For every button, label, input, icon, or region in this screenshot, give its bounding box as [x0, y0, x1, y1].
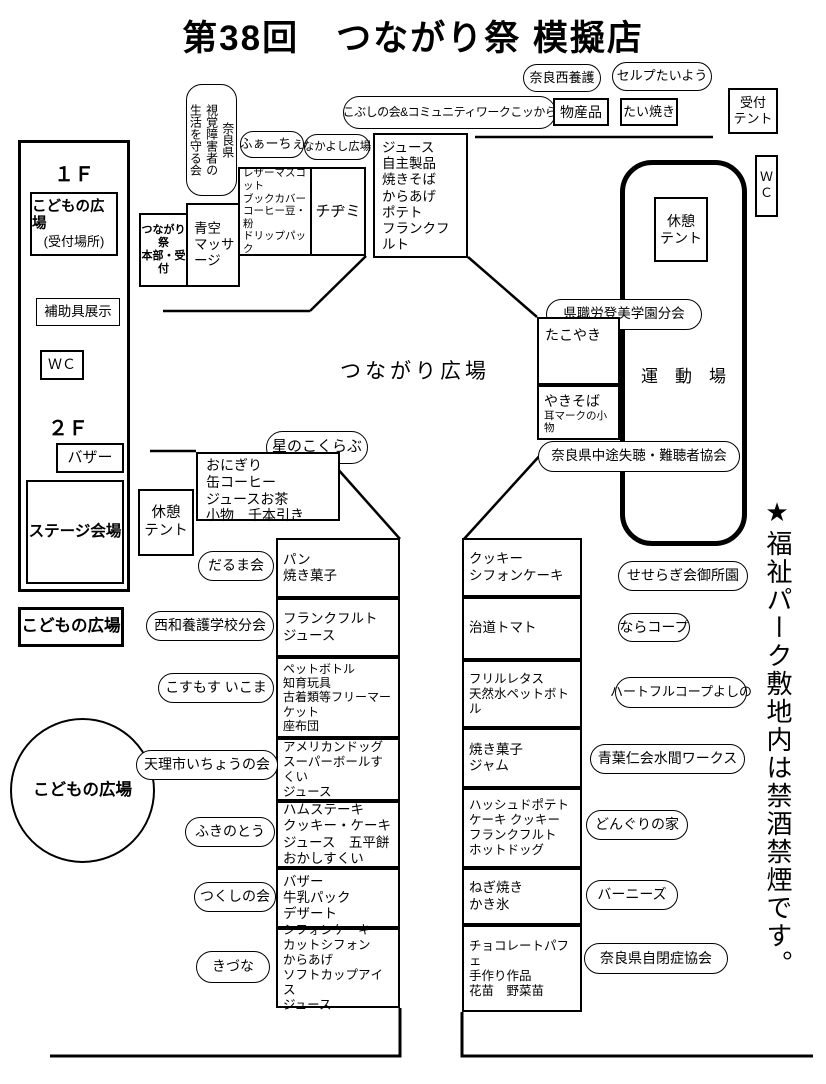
- booth-jiheisho: チョコレートパフェ 手作り作品 花苗 野菜苗: [462, 925, 582, 1012]
- booth-heartful: フリルレタス 天然水ペットボトル: [462, 660, 582, 728]
- org-tsukushi-no-kai: つくしの会: [194, 882, 276, 912]
- wc-box-right: Ｗ Ｃ: [755, 155, 778, 217]
- booth-cosmos: ペットボトル 知育玩具 古着類等フリーマーケット 座布団: [276, 657, 400, 738]
- wc-label: ＷＣ: [48, 357, 76, 374]
- bussanhin-label: 物産品: [560, 104, 602, 121]
- kids-plaza-circle: こどもの広場: [10, 718, 155, 863]
- nakayoshi-booth-box: ジュース 自主製品 焼きそば からあげ ポテト フランクフルト: [373, 133, 468, 258]
- kids-plaza-circle-label: こどもの広場: [33, 781, 132, 801]
- nara-nishi-yogo-oval: 奈良西養護: [523, 64, 601, 92]
- nakayoshi-hiroba-oval: なかよし広場: [304, 134, 370, 160]
- yakisoba-sub-label: 耳マークの小物: [544, 410, 613, 435]
- booth-seseragi: クッキー シフォンケーキ: [462, 538, 582, 597]
- aids-exhibit-box: 補助具展示: [36, 298, 120, 326]
- kids-plaza-outside-label: こどもの広場: [22, 617, 121, 637]
- no-smoking-notice: ★福祉パーク敷地内は禁酒禁煙です。: [760, 498, 797, 978]
- takoyaki-label: たこやき: [545, 327, 601, 344]
- org-cosmos-ikoma: こすもす いこま: [158, 673, 274, 703]
- booth-seiwa: フランクフルト ジュース: [276, 598, 400, 657]
- faache-oval: ふぁーちぇ: [240, 131, 304, 158]
- org-nara-jiheisho: 奈良県自閉症協会: [584, 943, 728, 974]
- org-nara-coop: ならコープ: [618, 613, 690, 642]
- yakisoba-label: やきそば: [544, 393, 600, 410]
- rest-tent-right-box: 休憩 テント: [654, 197, 708, 262]
- floor2-label: ２Ｆ: [18, 412, 118, 441]
- reception-tent-box: 受付 テント: [728, 88, 778, 134]
- booth-tsukushi: バザー 牛乳パック デザート: [276, 868, 400, 928]
- seikatsu-mamoru-kai-oval: 奈良県 視覚障害者の 生活を守る会: [186, 84, 237, 196]
- stage-hall-box: ステージ会場: [26, 480, 124, 584]
- yakisoba-box: やきそば 耳マークの小物: [537, 385, 620, 440]
- booth-donguri: ハッシュドポテト ケーキ クッキー フランクフルト ホットドッグ: [462, 788, 582, 868]
- org-seseragi-gosho: せせらぎ会御所園: [618, 561, 748, 591]
- festival-map: 第38回 つながり祭 模擬店 １Ｆ こどもの広場 (受付場所) 補助具展示 ＷＣ…: [0, 0, 826, 1084]
- wc-box-building: ＷＣ: [40, 350, 84, 380]
- kids-plaza-reception-box: こどもの広場 (受付場所): [30, 192, 118, 256]
- booth-daruma: パン 焼き菓子: [276, 538, 400, 598]
- kobushi-oval: こぶしの会&コミュニティワークこッから: [343, 96, 556, 129]
- taiyaki-label: たい焼き: [623, 104, 675, 120]
- stage-hall-label: ステージ会場: [29, 523, 122, 542]
- org-kizuna: きづな: [196, 951, 270, 983]
- sports-ground-label: 運 動 場: [620, 362, 747, 387]
- org-donguri-no-ie: どんぐりの家: [586, 810, 688, 840]
- kids-plaza-name: こどもの広場: [32, 199, 116, 234]
- bazaar-label: バザー: [67, 449, 112, 467]
- org-barneys: バーニーズ: [586, 880, 678, 910]
- bussanhin-box: 物産品: [553, 98, 609, 126]
- kids-plaza-outside-box: こどもの広場: [18, 607, 124, 647]
- hoshi-booth-box: おにぎり 缶コーヒー ジュースお茶 小物 千本引き: [196, 452, 340, 521]
- booth-fukinoto: ハムステーキ クッキー・ケーキ ジュース 五平餅 おかしすくい: [276, 801, 400, 868]
- chijimi-label: チヂミ: [315, 203, 360, 221]
- booth-kizuna: シフォンケーキ カットシフォン からあげ ソフトカップアイス ジュース: [276, 928, 400, 1008]
- aids-exhibit-label: 補助具展示: [44, 304, 112, 320]
- aozora-massage-box: 青空 マッサ ージ: [186, 203, 240, 287]
- org-seiwa-yogo: 西和養護学校分会: [146, 611, 274, 641]
- taiyaki-box: たい焼き: [620, 98, 678, 126]
- floor1-label: １Ｆ: [18, 158, 130, 187]
- org-fukinoto: ふきのとう: [185, 817, 275, 847]
- chijimi-box: チヂミ: [310, 167, 366, 256]
- org-aobajin-mizuma: 青葉仁会水間ワークス: [590, 744, 745, 774]
- nanchosha-kyokai-oval: 奈良県中途失聴・難聴者協会: [538, 441, 740, 472]
- tsunagari-hiroba-label: つながり広場: [300, 355, 530, 385]
- kids-plaza-note: (受付場所): [44, 234, 105, 250]
- page-title: 第38回 つながり祭 模擬店: [0, 10, 826, 61]
- booth-barneys: ねぎ焼き かき氷: [462, 868, 582, 925]
- org-daruma-kai: だるま会: [198, 551, 274, 581]
- booth-naracoop: 治道トマト: [462, 597, 582, 660]
- booth-aobajin: 焼き菓子 ジャム: [462, 728, 582, 788]
- org-tenri-icho: 天理市いちょうの会: [136, 750, 278, 780]
- org-heartful-coop: ハートフルコープよしの: [615, 677, 747, 708]
- takoyaki-box: たこやき: [537, 317, 620, 385]
- rest-tent-left-box: 休憩 テント: [138, 489, 194, 556]
- bazaar-box: バザー: [56, 443, 124, 473]
- leather-booth-box: レザーマスコット ブックカバー コーヒー豆・粉 ドリップパック: [238, 167, 312, 256]
- hq-reception-box: つながり祭 本部・受付: [139, 213, 188, 287]
- booth-tenri: アメリカンドッグ スーパーボールすくい ジュース: [276, 738, 400, 801]
- selp-taiyo-oval: セルプたいよう: [612, 62, 712, 91]
